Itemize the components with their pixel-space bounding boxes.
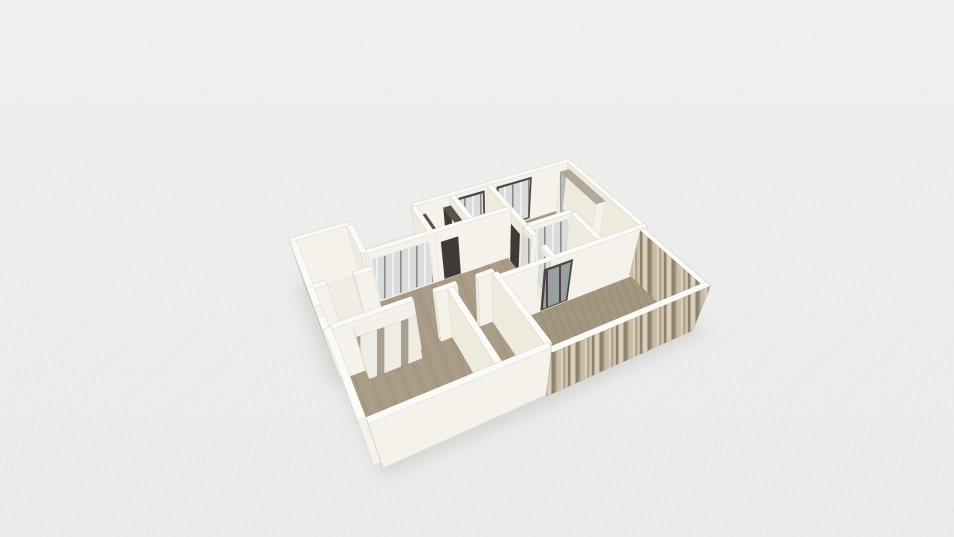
floorplan-3d-render (0, 0, 954, 537)
design-viewport[interactable] (0, 0, 954, 537)
door-laundry (441, 236, 461, 279)
